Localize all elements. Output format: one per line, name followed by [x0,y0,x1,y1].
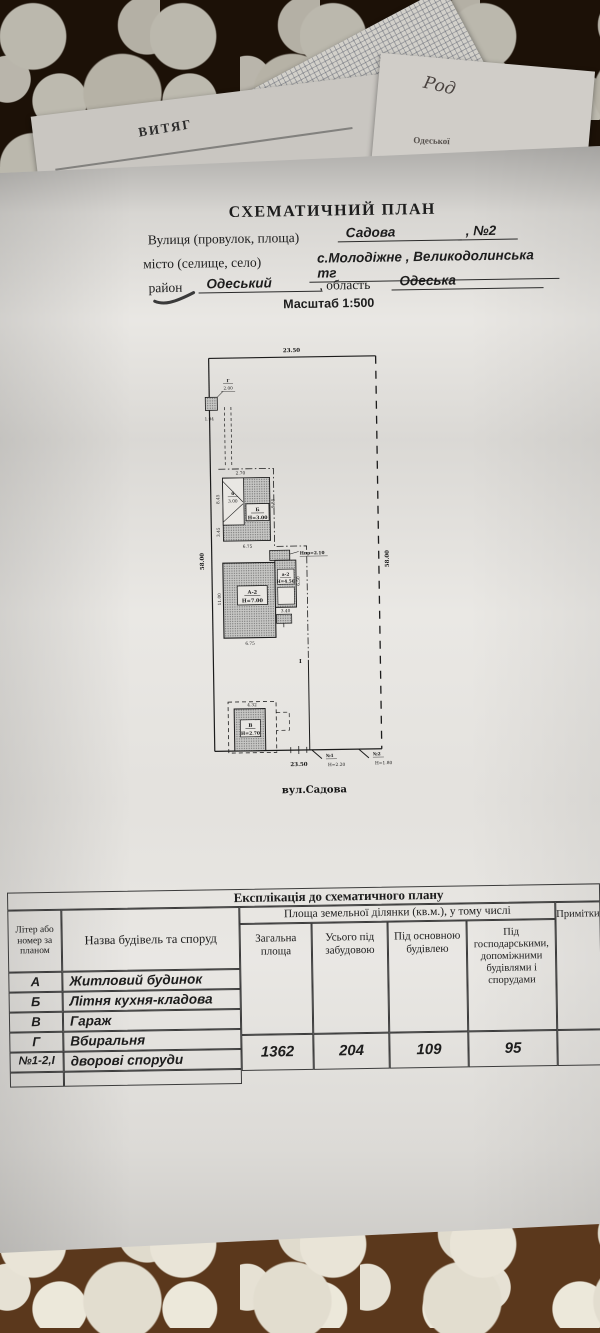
region-value: Одеська [391,271,543,290]
plan-dim-b-right: 9.85 [271,498,276,508]
built-area-value: 204 [313,1033,390,1070]
plan-dim-b-top: 2.70 [236,471,246,476]
annex-a-height: Н=4.50 [277,580,295,585]
plan-dim-top-width: 23.50 [283,348,300,354]
annex-b-label: б [231,492,234,497]
street-name: вул.Садова [282,784,348,796]
handwritten-note: Род [421,73,457,100]
region-label: , область [319,277,370,294]
plan-dim-b-bottom: 6.75 [243,545,253,550]
plan-dim-g-width: 2.00 [223,386,233,391]
building-g-label: Г [226,378,229,383]
auxiliary-area-value: 95 [468,1030,558,1067]
scale-note: Масштаб 1:500 [259,295,399,311]
building-v-garage: В Н=2.70 [228,701,290,753]
column-header-liter: Літер або номер за планом [7,910,62,973]
plan-dim-left-height: 58.00 [200,553,206,570]
building-a-label: А-2 [247,590,257,596]
plan-dim-a-annex-bottom: 3.40 [281,609,291,614]
column-header-total: Загальна площа [240,923,314,1035]
gate-1: №1 Н=2.20 [312,749,346,768]
building-a-height: Н=7.00 [242,598,264,604]
gate-2: №2 Н=1.80 [359,749,393,767]
street-number: , №2 [458,223,518,241]
row-name: Вбиральня [63,1029,241,1052]
row-name: Житловий будинок [62,969,240,992]
row-name: Гараж [63,1009,241,1032]
plot-boundary [209,356,382,752]
gate1-label: №1 [326,753,334,759]
plan-dim-b-left-lower: 3.45 [217,527,222,537]
row-liter: Б [9,992,63,1013]
plan-dim-a-annex-right: 6.50 [297,576,302,586]
column-header-auxiliary: Під господарськими, допоміжними будівлям… [466,919,557,1031]
gate1-height: Н=2.20 [328,763,346,768]
empty-cell [64,1069,242,1087]
page-content: СХЕМАТИЧНИЙ ПЛАН Вулиця (провулок, площа… [0,0,600,1333]
row-name: Літня кухня-кладова [63,989,241,1012]
building-v-height: Н=2.70 [241,731,260,737]
building-a-dwelling: А-2 Н=7.00 а-2 Н=4.50 [223,560,297,638]
building-b-height: Н=3.00 [248,515,269,521]
column-header-built: Усього під забудовою [312,922,390,1034]
main-building-area-value: 109 [389,1031,469,1068]
porch-height: Нпр=2.10 [300,551,325,556]
paper-text-fragment: Одеської [413,135,450,146]
plan-dim-right-height: 58.00 [385,550,391,567]
site-plan-drawing: 23.50 58.00 58.00 23.50 вул.Садова Г 2.0… [184,338,403,806]
building-v-label: В [248,723,252,729]
photo-of-schematic-plan: ВИТЯГ Род Одеської СХЕМАТИЧНИЙ ПЛАН Вули… [0,0,600,1333]
column-header-main-building: Під основною будівлею [387,920,468,1032]
row-liter: №1-2,І [10,1052,64,1073]
street-label: Вулиця (провулок, площа) [148,230,300,248]
total-area-value: 1362 [241,1034,314,1071]
porch: Нпр=2.10 [270,550,328,561]
schematic-plan-page: СХЕМАТИЧНИЙ ПЛАН Вулиця (провулок, площа… [0,0,600,1333]
plan-dim-v-top: 4.32 [247,703,257,708]
explication-table: Експлікація до схематичного плану Літер … [7,883,600,1088]
annex-a-label: а-2 [282,573,290,578]
column-header-notes: Примітки [555,901,600,1030]
column-header-name: Назва будівель та споруд [61,907,240,972]
district-value: Одеський [198,275,322,294]
plan-dim-a-left: 11.00 [218,593,223,606]
yard-fence-line [308,660,309,750]
row-liter: Г [9,1032,63,1053]
gate2-label: №2 [373,751,381,757]
empty-cell [10,1072,64,1088]
plan-dim-bottom-width: 23.50 [290,762,307,768]
row-liter: В [9,1012,63,1033]
page-title: СХЕМАТИЧНИЙ ПЛАН [167,200,497,223]
city-label: місто (селище, село) [143,255,261,273]
empty-cell [557,1029,600,1066]
building-b-label: Б [255,507,259,513]
yard-numeral: І [299,659,302,665]
street-value: Садова [338,223,462,242]
row-name: дворові споруди [63,1049,241,1072]
pen-squiggle [152,288,200,309]
row-liter: А [8,972,62,993]
plan-dim-g-offset: 1.04 [205,416,215,421]
building-b-summer-kitchen: б 3.00 Б Н=3.00 [223,477,271,541]
vytiag-heading: ВИТЯГ [137,116,193,140]
plan-dim-b-left-upper: 8.45 [216,494,221,504]
annex-b-height: 3.00 [228,499,238,504]
walkway-dashed-path [224,407,231,466]
plan-dim-a-bottom: 6.75 [245,642,255,647]
gate2-height: Н=1.80 [375,761,393,766]
